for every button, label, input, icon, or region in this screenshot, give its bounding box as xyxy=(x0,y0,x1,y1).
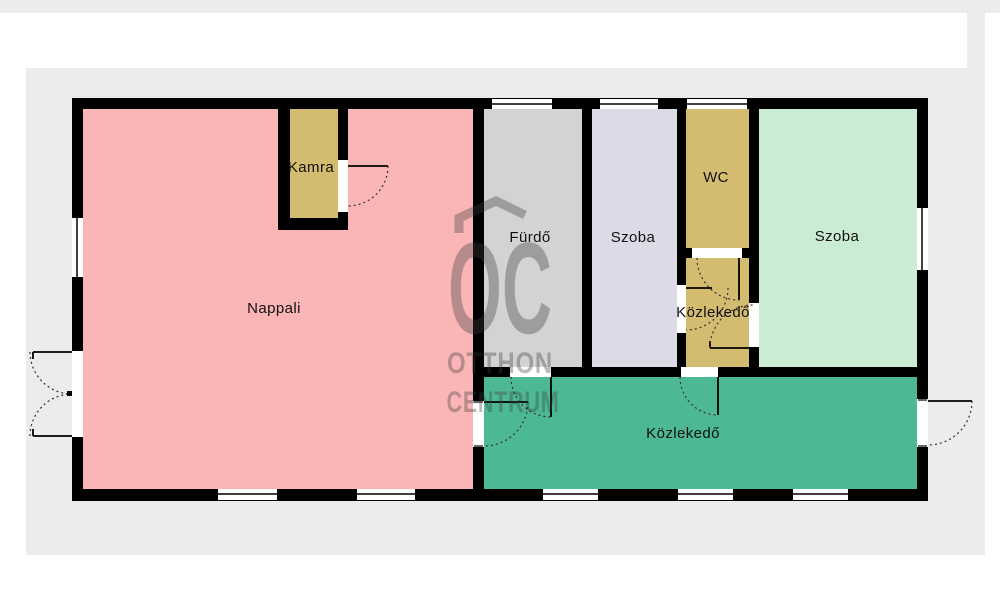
label-kozlekedo-hall: Közlekedő xyxy=(646,425,720,442)
label-wc: WC xyxy=(703,169,729,186)
door-opening-kamra xyxy=(338,160,348,212)
label-kamra: Kamra xyxy=(288,159,334,176)
watermark-line1: OTTHON xyxy=(447,347,553,380)
label-szoba-2: Szoba xyxy=(815,228,860,245)
label-szoba-1: Szoba xyxy=(611,229,656,246)
floorplan-image: OC OTTHON CENTRUM Nappali Kamra Fürdő Sz… xyxy=(0,0,1000,616)
door-opening-entrance xyxy=(917,399,928,447)
wall-furdo-szoba xyxy=(582,109,592,367)
wall-kamra-bottom xyxy=(278,218,348,230)
top-white-band xyxy=(15,13,967,68)
label-nappali: Nappali xyxy=(247,300,301,317)
top-gray-strip xyxy=(0,0,1000,13)
door-opening-kozlekedo-right xyxy=(749,303,759,347)
door-opening-kozlekedo-bottom xyxy=(681,367,718,377)
french-door-meeting-dot xyxy=(67,391,72,396)
label-furdo: Fürdő xyxy=(509,229,550,246)
watermark-line2: CENTRUM xyxy=(447,386,560,419)
door-opening-wc xyxy=(692,248,742,258)
door-opening-french xyxy=(72,351,83,437)
label-kozlekedo-small: Közlekedő xyxy=(676,304,750,321)
